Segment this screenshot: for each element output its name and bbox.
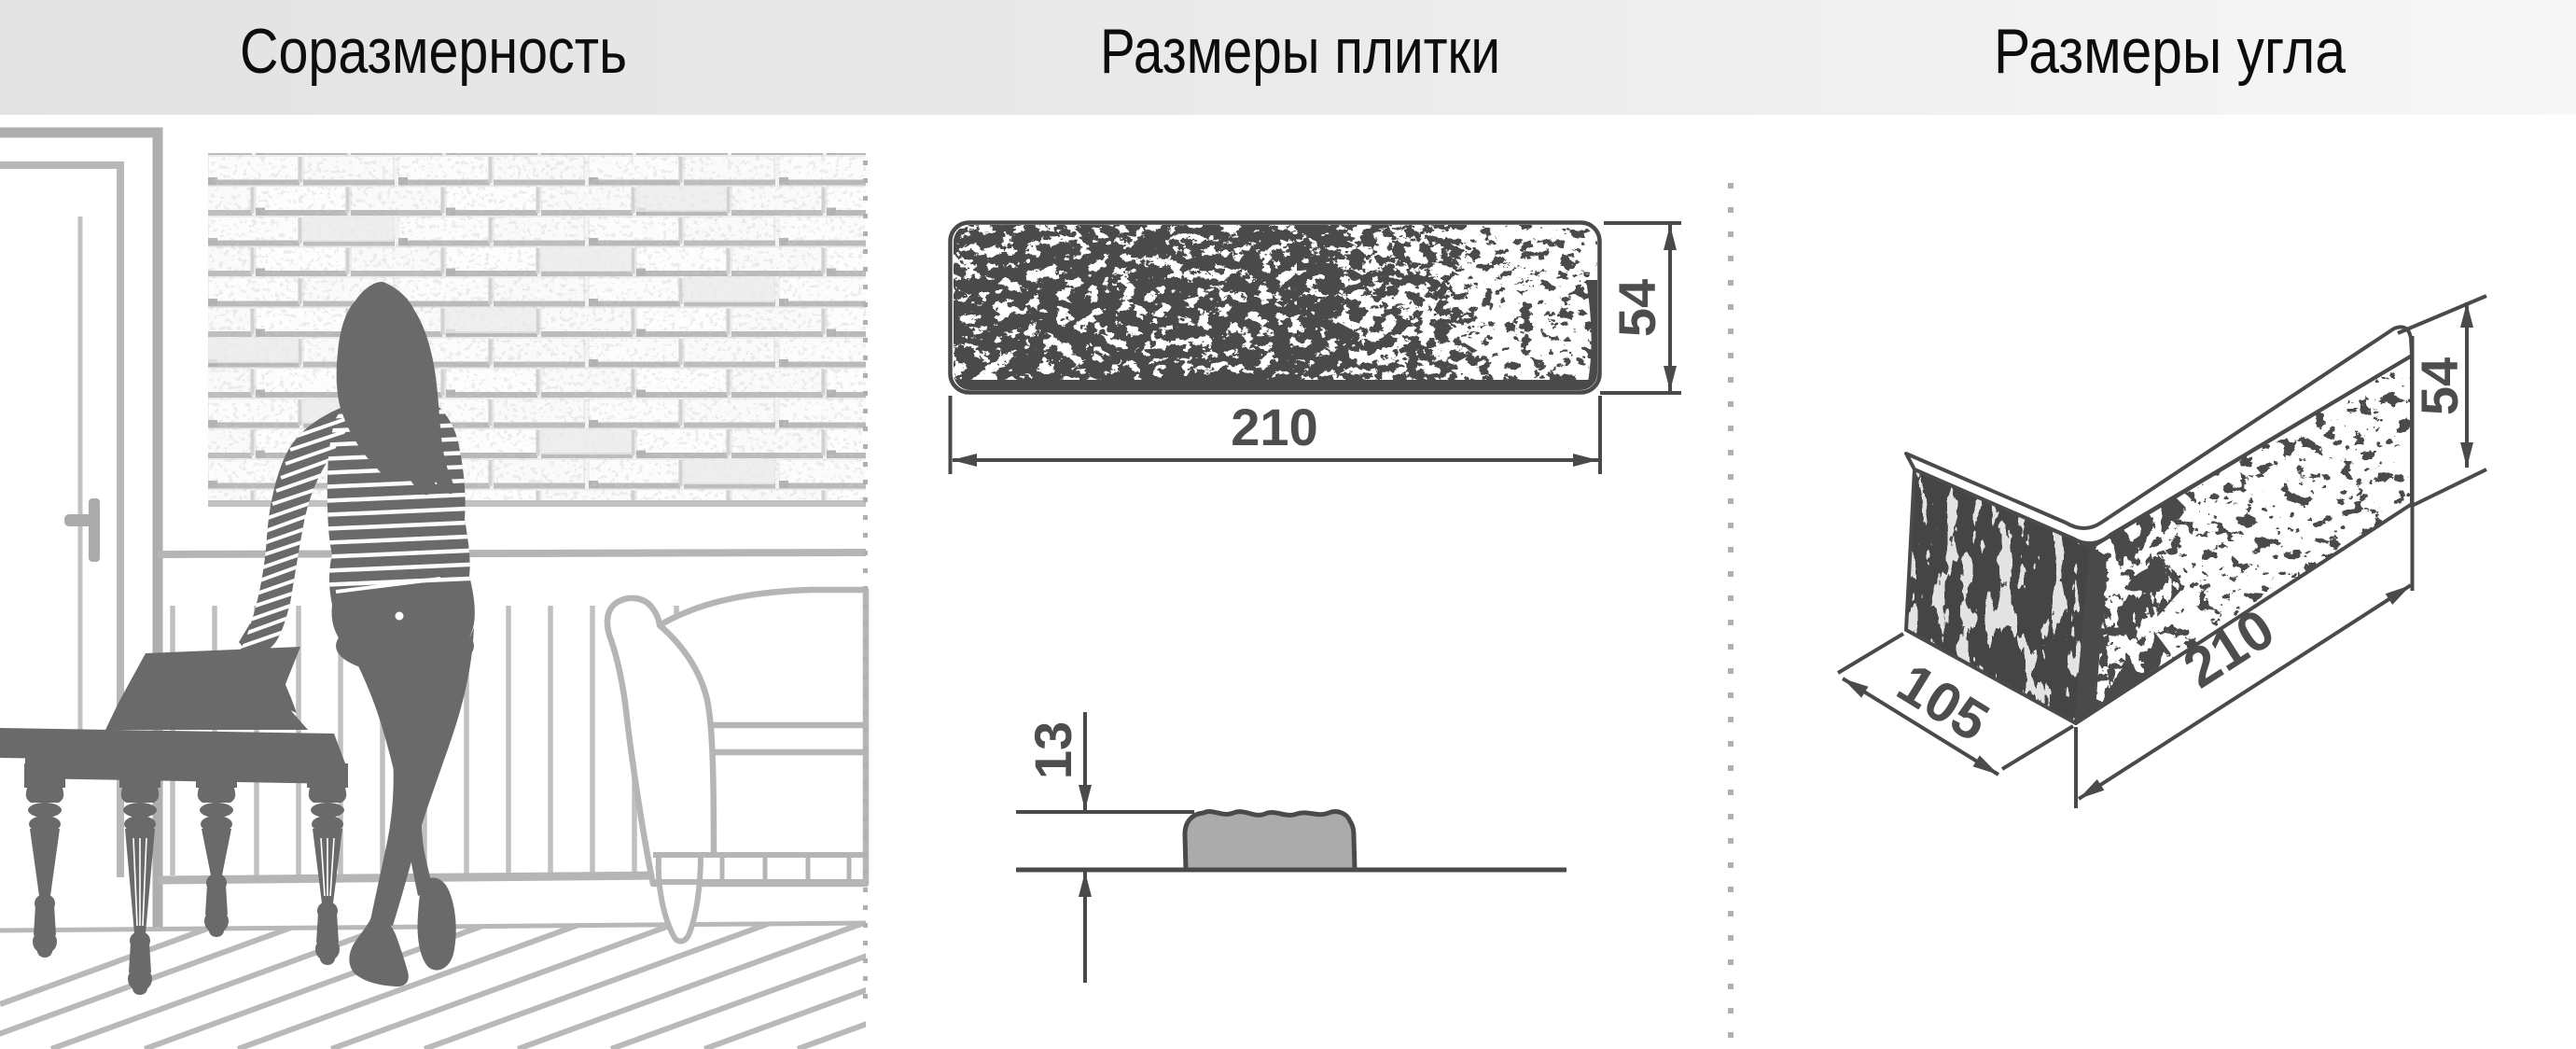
svg-text:Соразмерность: Соразмерность <box>240 16 627 87</box>
svg-text:Размеры плитки: Размеры плитки <box>1100 16 1500 87</box>
svg-text:13: 13 <box>1023 721 1082 779</box>
svg-text:54: 54 <box>2410 357 2469 415</box>
svg-text:210: 210 <box>1231 398 1317 456</box>
svg-text:54: 54 <box>1608 279 1666 337</box>
svg-text:Размеры угла: Размеры угла <box>1994 16 2346 87</box>
